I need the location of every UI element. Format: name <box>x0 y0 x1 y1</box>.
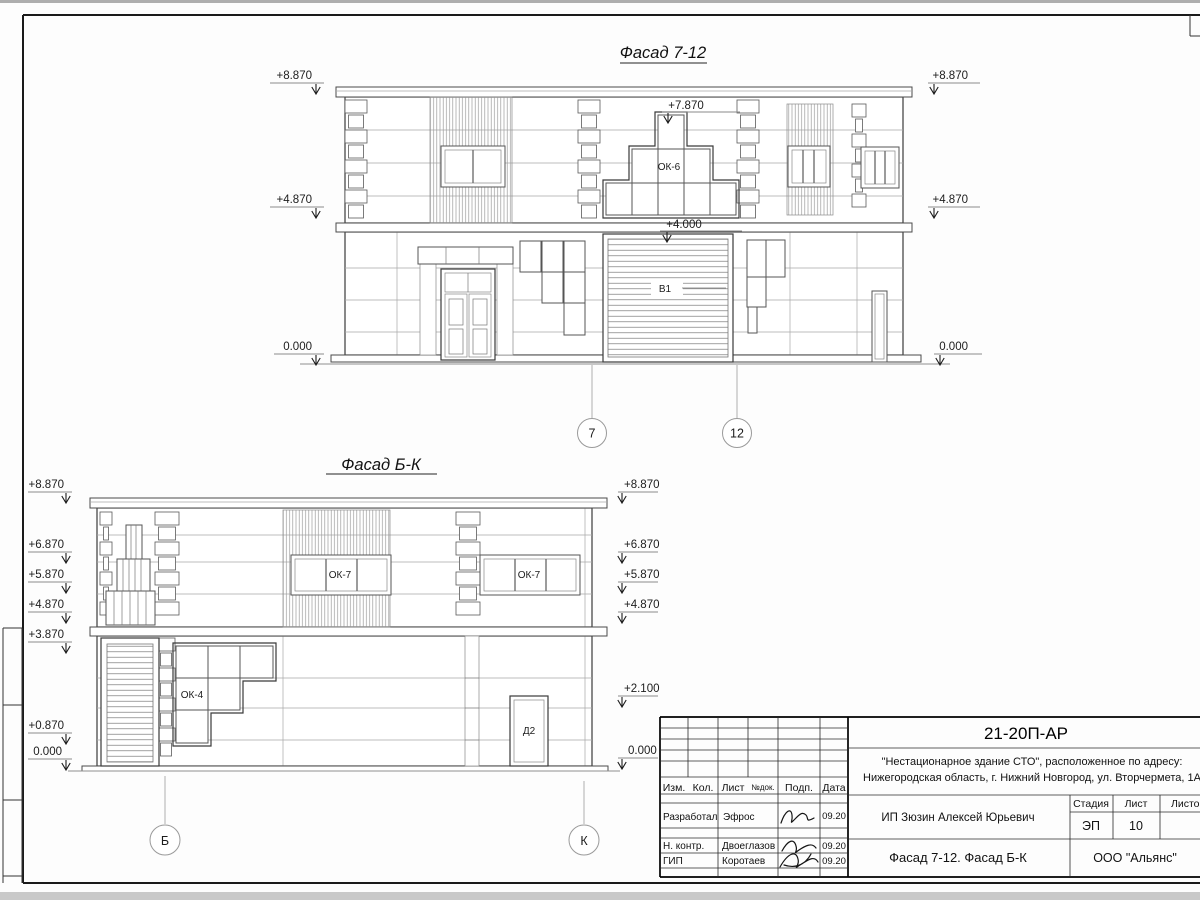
elevation-mark: +6.870 <box>618 539 660 563</box>
elevation-mark: +6.870 <box>28 539 72 563</box>
facade-bottom-floor-band <box>90 627 607 636</box>
axis-bubble-12: 12 <box>723 365 752 448</box>
gate-b1: В1 <box>603 234 733 362</box>
svg-text:+4.000: +4.000 <box>666 219 702 231</box>
svg-text:+7.870: +7.870 <box>668 100 704 112</box>
elevation-mark: +5.870 <box>28 569 72 593</box>
svg-text:+2.100: +2.100 <box>624 683 660 695</box>
signature-scribble <box>780 854 818 867</box>
tb-header-podp: Подп. <box>785 782 813 794</box>
svg-text:0.000: 0.000 <box>628 745 657 757</box>
elevation-mark: 0.000 <box>934 341 982 365</box>
elevation-mark: 0.000 <box>274 341 324 365</box>
axis-bubble-k: К <box>569 781 599 855</box>
facade-bottom-drawing: Фасад Б-К ОК-7 ОК-7 <box>28 456 660 855</box>
svg-text:+4.870: +4.870 <box>29 599 65 611</box>
axis-bubble-b: Б <box>150 776 180 855</box>
entrance-door <box>418 247 513 360</box>
elevation-mark: +3.870 <box>28 629 72 653</box>
svg-text:+0.870: +0.870 <box>29 720 65 732</box>
svg-text:+6.870: +6.870 <box>624 539 660 551</box>
door-d2: Д2 <box>510 696 548 766</box>
svg-text:7: 7 <box>589 427 596 441</box>
tb-client: ИП Зюзин Алексей Юрьевич <box>881 812 1034 824</box>
tb-name-3: Коротаев <box>722 856 765 867</box>
tb-project-line1: "Нестационарное здание СТО", расположенн… <box>882 756 1183 768</box>
tb-name-1: Эфрос <box>723 811 755 823</box>
svg-text:+6.870: +6.870 <box>29 539 65 551</box>
elevation-mark: +8.870 <box>928 70 980 94</box>
svg-text:+8.870: +8.870 <box>29 479 65 491</box>
elevation-mark: +8.870 <box>618 479 660 503</box>
svg-text:0.000: 0.000 <box>939 341 968 353</box>
svg-text:+8.870: +8.870 <box>933 70 969 82</box>
facade-top-title: Фасад 7-12 <box>620 44 706 62</box>
svg-text:12: 12 <box>730 427 744 441</box>
quoin-column <box>456 512 480 615</box>
elevation-mark: 0.000 <box>28 746 72 770</box>
tb-role-3: ГИП <box>663 856 683 867</box>
svg-text:+3.870: +3.870 <box>29 629 65 641</box>
axis-bubble-7: 7 <box>578 365 607 448</box>
window-label-ok4: ОК-4 <box>181 690 204 701</box>
signature-scribble <box>781 811 814 823</box>
elevation-mark: 0.000 <box>618 745 658 769</box>
titleblock: Изм. Кол. Лист №док. Подп. Дата Разработ… <box>660 717 1200 877</box>
window-label-ok7: ОК-7 <box>518 570 541 581</box>
tb-header-date: Дата <box>822 782 845 794</box>
window-upper-left <box>441 146 505 187</box>
facade-bottom-base <box>82 766 608 771</box>
tb-sheet-value: 10 <box>1129 819 1143 833</box>
svg-text:+5.870: +5.870 <box>624 569 660 581</box>
downpipe <box>872 291 887 362</box>
elevation-mark: +4.870 <box>28 599 72 623</box>
window-ok7-left: ОК-7 <box>291 555 391 595</box>
svg-text:+4.870: +4.870 <box>277 194 313 206</box>
svg-text:+8.870: +8.870 <box>277 70 313 82</box>
svg-text:+5.870: +5.870 <box>29 569 65 581</box>
tb-header-izm: Изм. <box>663 782 686 794</box>
window-upper-mid-right <box>788 146 830 187</box>
tb-role-1: Разработал <box>663 811 718 823</box>
facade-bottom-title: Фасад Б-К <box>341 456 422 474</box>
svg-text:0.000: 0.000 <box>33 746 62 758</box>
elevation-mark: +4.870 <box>270 194 324 218</box>
facade-bottom-parapet <box>90 498 607 508</box>
drawing-sheet: Фасад 7-12 ОК-6 <box>0 0 1200 900</box>
elevation-mark: +0.870 <box>28 720 72 744</box>
svg-text:+4.870: +4.870 <box>624 599 660 611</box>
tb-sheet-title: Фасад 7-12. Фасад Б-К <box>889 850 1027 865</box>
quoin-column <box>155 512 179 615</box>
signature-scribble <box>782 841 816 852</box>
svg-text:К: К <box>580 834 588 848</box>
elevation-mark: +2.100 <box>618 683 660 707</box>
tb-project-code: 21-20П-АР <box>984 724 1068 743</box>
tb-name-2: Двоеглазов <box>722 841 775 852</box>
window-label-ok6: ОК-6 <box>658 162 681 173</box>
tb-organization: ООО "Альянс" <box>1093 851 1177 865</box>
gate-label-b1: В1 <box>659 284 672 295</box>
window-upper-right <box>861 147 899 188</box>
elevation-mark: +4.870 <box>618 599 660 623</box>
facade-top-parapet <box>336 87 912 97</box>
tb-header-sheets: Листов <box>1171 798 1200 810</box>
svg-text:Б: Б <box>161 834 169 848</box>
tb-date-3: 09.20 <box>822 856 846 867</box>
tb-date-2: 09.20 <box>822 841 846 852</box>
tb-header-kol: Кол. <box>693 782 714 794</box>
tb-header-stage: Стадия <box>1073 798 1109 810</box>
tb-project-line2: Нижегородская область, г. Нижний Новгоро… <box>863 772 1200 784</box>
facade-top-drawing: Фасад 7-12 ОК-6 <box>270 44 982 448</box>
tb-header-sheet: Лист <box>1125 798 1148 810</box>
elevation-mark: +4.870 <box>928 194 980 218</box>
tb-header-doc: №док. <box>751 783 774 792</box>
tb-stage-value: ЭП <box>1082 819 1100 833</box>
tb-header-list: Лист <box>722 782 745 794</box>
elevation-mark: +8.870 <box>270 70 324 94</box>
svg-text:0.000: 0.000 <box>283 341 312 353</box>
elevation-mark: +5.870 <box>618 569 660 593</box>
roller-door-left <box>101 638 159 766</box>
tb-role-2: Н. контр. <box>663 841 704 852</box>
elevation-mark: +8.870 <box>28 479 72 503</box>
drawing-canvas: Фасад 7-12 ОК-6 <box>0 0 1200 900</box>
svg-text:+8.870: +8.870 <box>624 479 660 491</box>
tb-date-1: 09.20 <box>822 811 846 822</box>
window-ok7-right: ОК-7 <box>480 555 580 595</box>
ladder-downpipe <box>465 636 479 766</box>
window-label-ok7: ОК-7 <box>329 570 352 581</box>
facade-top-floor-band <box>336 223 912 232</box>
door-label-d2: Д2 <box>523 726 536 737</box>
svg-text:+4.870: +4.870 <box>933 194 969 206</box>
